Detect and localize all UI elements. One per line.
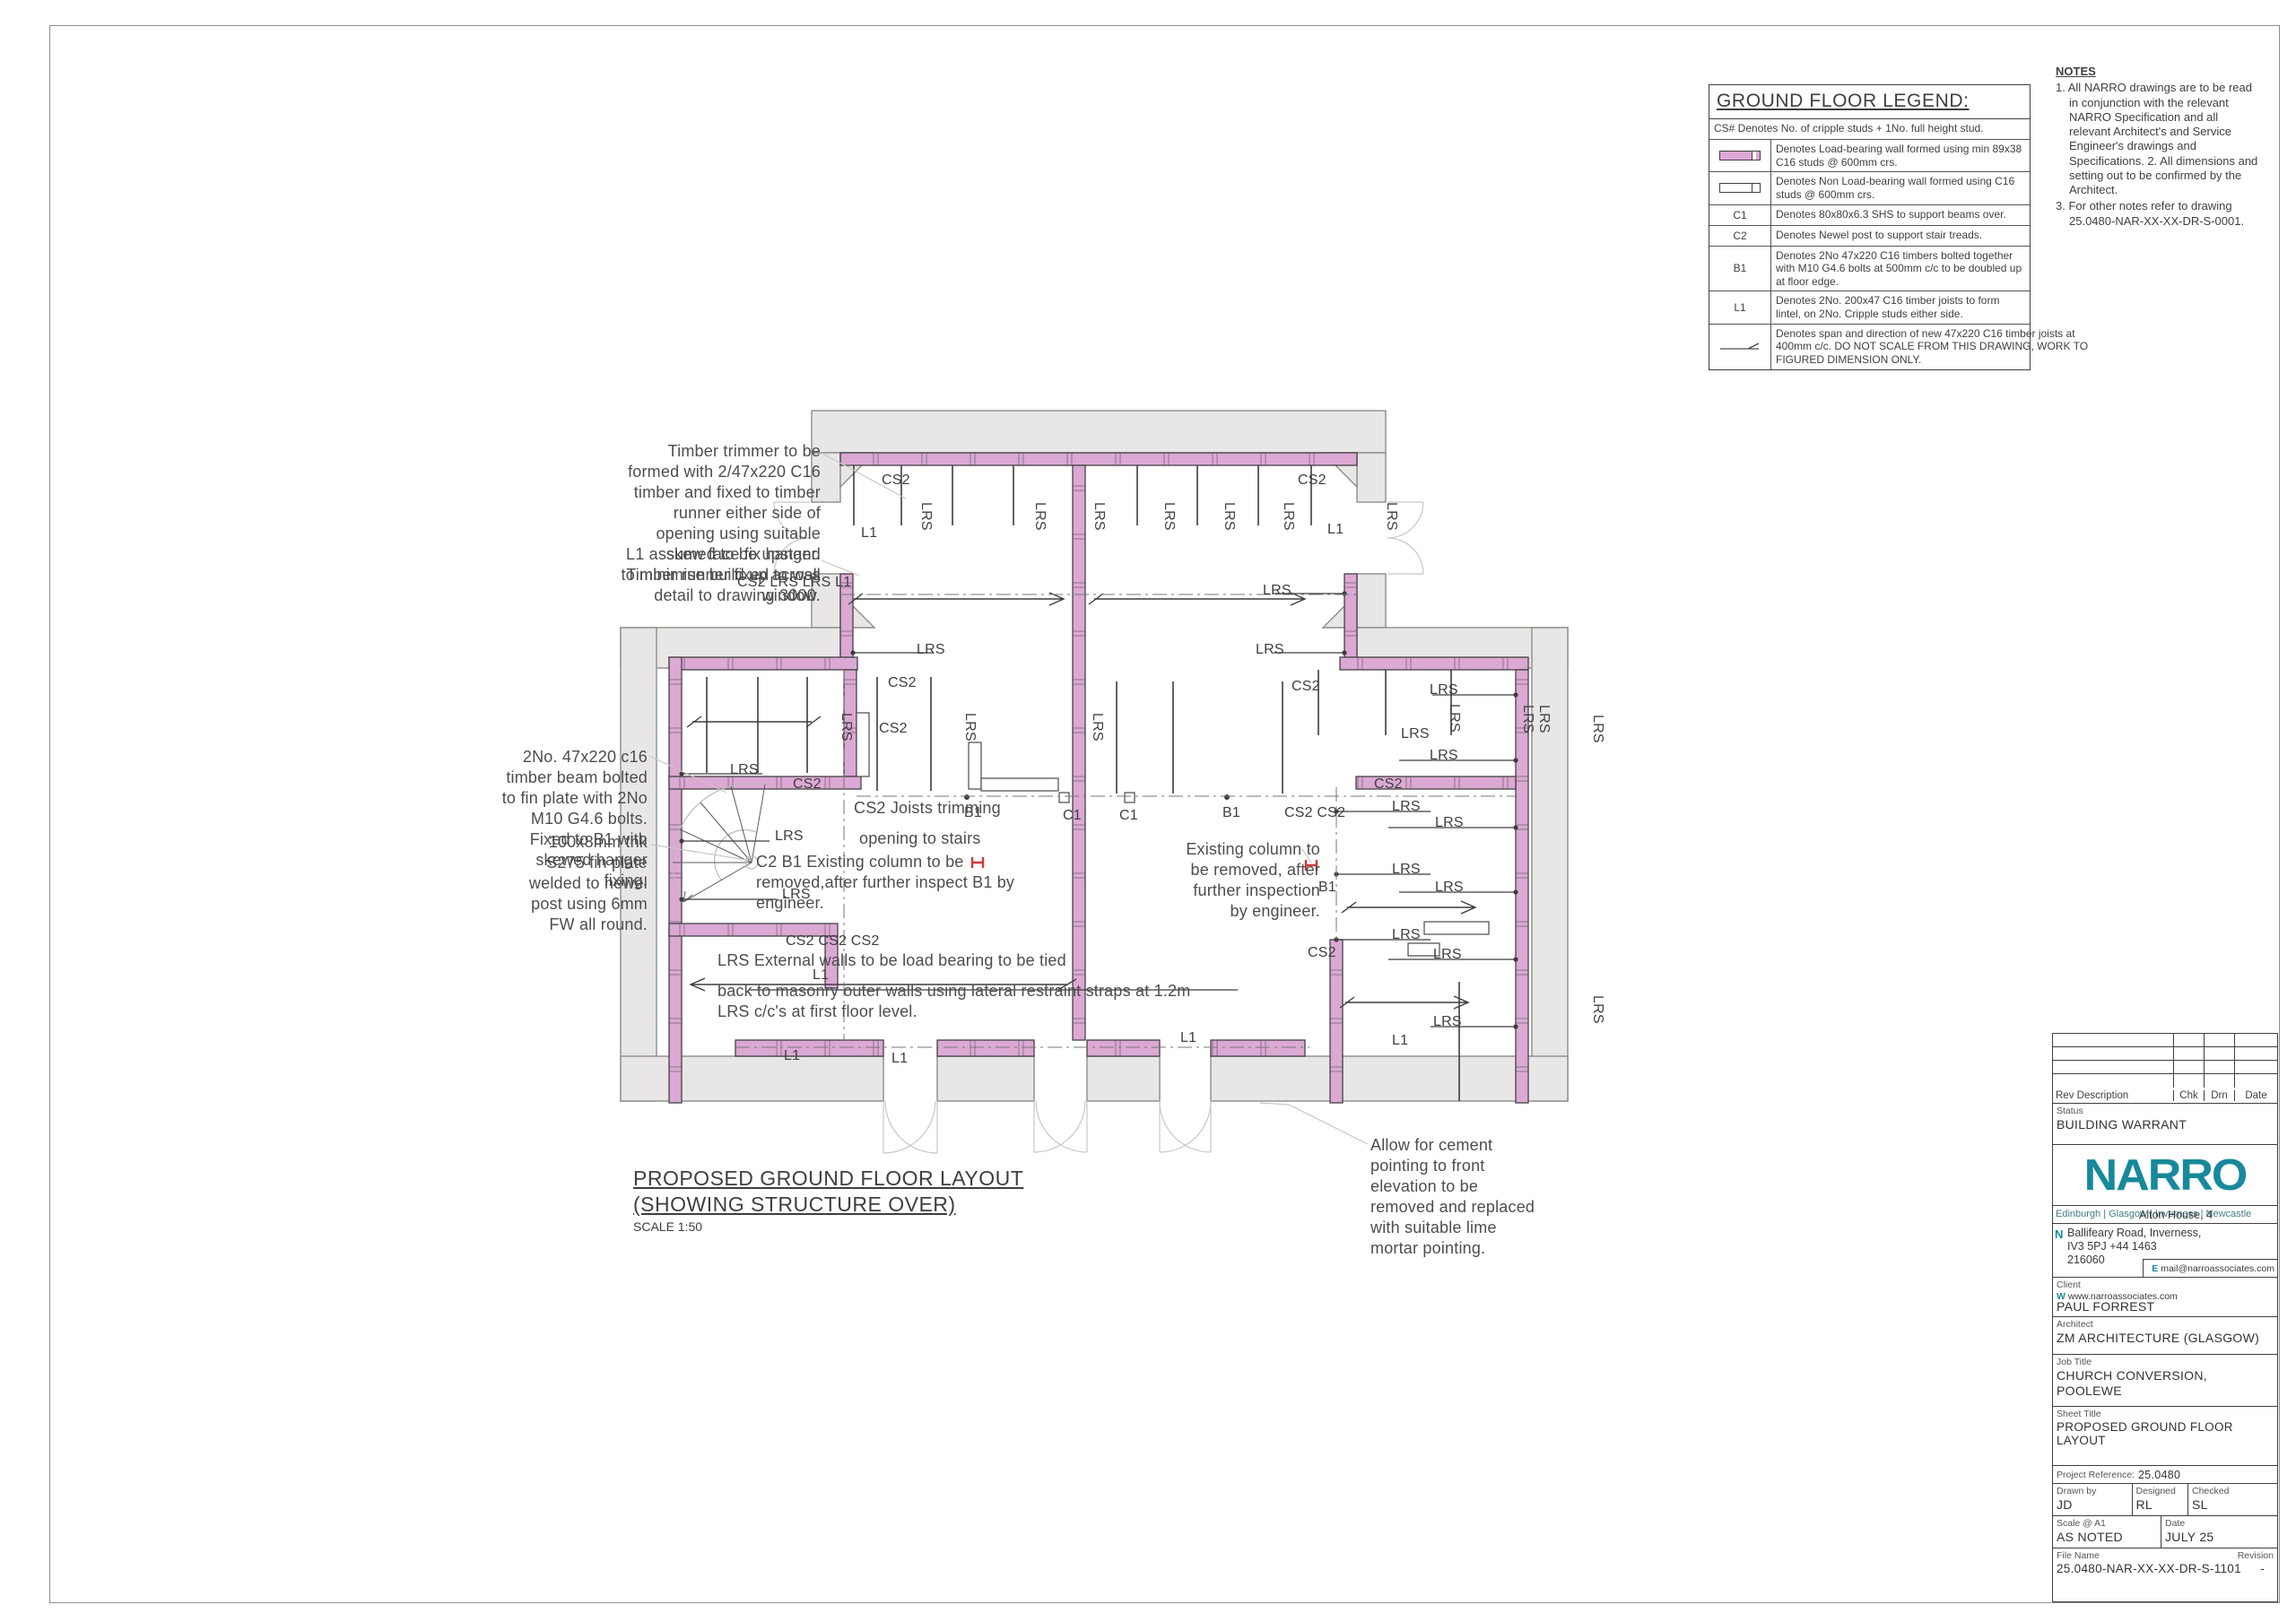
legend-text: Denotes Load-bearing wall formed using m…: [1771, 140, 2030, 171]
legend-text: Denotes 80x80x6.3 SHS to support beams o…: [1771, 205, 2030, 225]
legend-row: C2Denotes Newel post to support stair tr…: [1709, 225, 2030, 246]
drawn-designed-checked-row: Drawn by JD Designed RL Checked SL: [2053, 1484, 2277, 1516]
architect-label: Architect: [2053, 1317, 2277, 1330]
note-item: 1. All NARRO drawings are to be read in …: [2056, 81, 2260, 197]
legend-symbol: [1709, 172, 1771, 204]
span-arrow-symbol: [1719, 342, 1761, 352]
address-line: Ballifeary Road, Inverness,: [2057, 1227, 2201, 1240]
designed-cell: Designed RL: [2132, 1484, 2188, 1515]
scale-label: Scale @ A1: [2053, 1516, 2161, 1529]
project-reference-cell: Project Reference: 25.0480: [2053, 1466, 2277, 1484]
drawing-title-line1: PROPOSED GROUND FLOOR LAYOUT: [633, 1166, 1023, 1192]
revision-label: Revision: [2234, 1548, 2274, 1561]
drawn-value: JD: [2053, 1496, 2132, 1512]
rev-date-header: Date: [2234, 1090, 2277, 1101]
scale-value: AS NOTED: [2053, 1529, 2161, 1544]
legend-text: Denotes 2No 47x220 C16 timbers bolted to…: [1771, 247, 2030, 291]
logo-cell: NARRO: [2053, 1145, 2277, 1206]
legend-symbol: [1709, 140, 1771, 171]
client-label: Client: [2053, 1278, 2277, 1290]
job-title-line1: CHURCH CONVERSION,: [2053, 1367, 2277, 1383]
checked-value: SL: [2188, 1496, 2277, 1512]
note-item: 3. For other notes refer to drawing 25.0…: [2056, 199, 2260, 229]
legend-rows: CS# Denotes No. of cripple studs + 1No. …: [1709, 119, 2030, 369]
notes-title: NOTES: [2056, 65, 2260, 79]
legend-row: C1Denotes 80x80x6.3 SHS to support beams…: [1709, 204, 2030, 225]
project-reference-label: Project Reference:: [2053, 1470, 2135, 1480]
status-cell: Status BUILDING WARRANT: [2053, 1104, 2277, 1145]
drawing-title-line2: (SHOWING STRUCTURE OVER): [633, 1192, 1023, 1218]
legend-title: GROUND FLOOR LEGEND:: [1709, 85, 2030, 119]
scale-cell: Scale @ A1 AS NOTED: [2053, 1516, 2161, 1548]
sheet-title-value: PROPOSED GROUND FLOOR LAYOUT: [2053, 1419, 2277, 1447]
address-line: IV3 5PJ +44 1463: [2057, 1240, 2201, 1253]
legend-text: Denotes Newel post to support stair trea…: [1771, 226, 2030, 246]
offices-cell: Edinburgh | Glasgow | Inverness | Newcas…: [2053, 1206, 2277, 1224]
revision-empty-rows: [2053, 1034, 2277, 1088]
narro-logo: NARRO: [2084, 1149, 2247, 1201]
legend-symbol: B1: [1709, 247, 1771, 291]
drawn-cell: Drawn by JD: [2053, 1484, 2132, 1515]
legend-row: L1Denotes 2No. 200x47 C16 timber joists …: [1709, 291, 2030, 323]
sheet-title-label: Sheet Title: [2053, 1407, 2277, 1419]
ground-floor-legend: GROUND FLOOR LEGEND: CS# Denotes No. of …: [1709, 84, 2031, 370]
project-reference-value: 25.0480: [2135, 1469, 2180, 1481]
drawing-scale: SCALE 1:50: [633, 1219, 1023, 1234]
title-block: Rev Description Chk Drn Date Status BUIL…: [2052, 1033, 2278, 1602]
client-cell: Client W www.narroassociates.com PAUL FO…: [2053, 1278, 2277, 1317]
legend-symbol: [1709, 325, 1771, 369]
revision-empty-row: [2053, 1034, 2277, 1047]
sheet-title-cell: Sheet Title PROPOSED GROUND FLOOR LAYOUT: [2053, 1407, 2277, 1466]
legend-symbol: C2: [1709, 226, 1771, 246]
legend-symbol: L1: [1709, 291, 1771, 323]
non-loadbearing-wall-symbol: [1719, 183, 1761, 193]
checked-label: Checked: [2188, 1484, 2277, 1496]
legend-text: CS# Denotes No. of cripple studs + 1No. …: [1709, 119, 2030, 139]
legend-row: CS# Denotes No. of cripple studs + 1No. …: [1709, 119, 2030, 139]
email-cell: E mail@narroassociates.com: [2143, 1259, 2277, 1277]
legend-row: Denotes Non Load-bearing wall formed usi…: [1709, 171, 2030, 204]
revision-empty-row: [2053, 1061, 2277, 1074]
date-label: Date: [2161, 1516, 2277, 1529]
drawing-title: PROPOSED GROUND FLOOR LAYOUT (SHOWING ST…: [633, 1166, 1023, 1234]
notes-panel: NOTES 1. All NARRO drawings are to be re…: [2056, 65, 2260, 230]
rev-description-header: Rev Description: [2053, 1090, 2173, 1101]
revision-empty-row: [2053, 1047, 2277, 1061]
legend-text: Denotes 2No. 200x47 C16 timber joists to…: [1771, 291, 2030, 323]
email-value: mail@narroassociates.com: [2161, 1263, 2274, 1274]
drawing-sheet: { "colors": { "wall_loadbearing": "#DCA8…: [0, 0, 2296, 1622]
file-name-label: File Name: [2053, 1548, 2100, 1561]
address-house: Alton House, 4: [2139, 1209, 2213, 1221]
revision-value: -: [2257, 1561, 2265, 1575]
date-value: JULY 25: [2161, 1529, 2277, 1544]
legend-symbol: C1: [1709, 205, 1771, 225]
file-name-value: 25.0480-NAR-XX-XX-DR-S-1101: [2053, 1561, 2241, 1575]
job-title-line2: POOLEWE: [2053, 1383, 2277, 1398]
status-label: Status: [2053, 1104, 2277, 1116]
checked-cell: Checked SL: [2187, 1484, 2277, 1515]
legend-text: Denotes Non Load-bearing wall formed usi…: [1771, 172, 2030, 204]
notes-items: 1. All NARRO drawings are to be read in …: [2056, 81, 2260, 229]
job-title-cell: Job Title CHURCH CONVERSION, POOLEWE: [2053, 1355, 2277, 1407]
revision-empty-row: [2053, 1074, 2277, 1088]
revision-header: Rev Description Chk Drn Date: [2053, 1088, 2277, 1104]
loadbearing-wall-symbol: [1719, 151, 1761, 160]
scale-date-row: Scale @ A1 AS NOTED Date JULY 25: [2053, 1516, 2277, 1548]
designed-label: Designed: [2133, 1484, 2188, 1496]
rev-drn-header: Drn: [2204, 1090, 2234, 1101]
address-cell: N Ballifeary Road, Inverness,IV3 5PJ +44…: [2053, 1224, 2277, 1278]
status-value: BUILDING WARRANT: [2053, 1116, 2277, 1132]
job-title-label: Job Title: [2053, 1355, 2277, 1367]
legend-row: Denotes Load-bearing wall formed using m…: [1709, 139, 2030, 171]
designed-value: RL: [2133, 1496, 2188, 1512]
rev-chk-header: Chk: [2173, 1090, 2204, 1101]
legend-text: Denotes span and direction of new 47x220…: [1771, 325, 2114, 369]
drawn-label: Drawn by: [2053, 1484, 2132, 1496]
legend-row: Denotes span and direction of new 47x220…: [1709, 324, 2030, 369]
legend-row: B1Denotes 2No 47x220 C16 timbers bolted …: [1709, 246, 2030, 291]
architect-cell: Architect ZM ARCHITECTURE (GLASGOW): [2053, 1317, 2277, 1355]
architect-value: ZM ARCHITECTURE (GLASGOW): [2053, 1330, 2277, 1345]
date-cell: Date JULY 25: [2161, 1516, 2277, 1548]
email-prefix: E: [2152, 1263, 2158, 1274]
file-name-cell: File Name Revision 25.0480-NAR-XX-XX-DR-…: [2053, 1548, 2277, 1601]
